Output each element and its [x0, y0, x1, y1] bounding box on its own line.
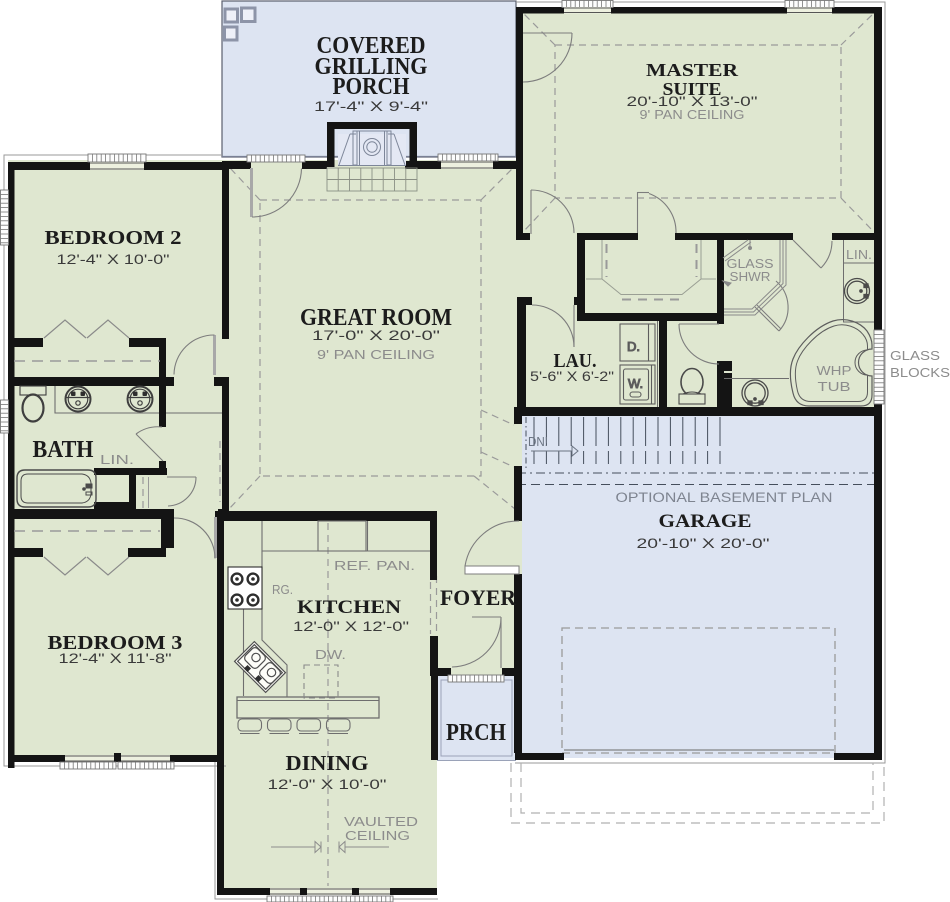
- svg-text:9' PAN CEILING: 9' PAN CEILING: [640, 107, 745, 122]
- svg-text:GLASS: GLASS: [727, 257, 774, 271]
- svg-text:GARAGE: GARAGE: [659, 511, 752, 532]
- svg-text:FOYER: FOYER: [440, 585, 517, 610]
- svg-text:DW.: DW.: [315, 647, 346, 662]
- svg-text:12'-4" X 11'-8": 12'-4" X 11'-8": [59, 650, 172, 666]
- svg-text:MASTER: MASTER: [646, 60, 739, 80]
- svg-text:KITCHEN: KITCHEN: [297, 597, 401, 618]
- svg-text:9' PAN CEILING: 9' PAN CEILING: [317, 347, 435, 362]
- svg-text:BLOCKS: BLOCKS: [890, 365, 950, 380]
- svg-text:VAULTED: VAULTED: [344, 814, 418, 829]
- svg-text:DN!: DN!: [528, 434, 548, 449]
- svg-text:LIN.: LIN.: [100, 452, 134, 467]
- svg-text:BEDROOM 2: BEDROOM 2: [45, 227, 182, 249]
- svg-text:PORCH: PORCH: [333, 74, 410, 100]
- svg-text:BATH: BATH: [33, 437, 94, 463]
- svg-text:LIN.: LIN.: [846, 248, 872, 262]
- svg-text:D.: D.: [627, 339, 640, 354]
- svg-text:RG.: RG.: [272, 582, 293, 597]
- svg-text:WHP: WHP: [817, 364, 852, 378]
- svg-text:CEILING: CEILING: [345, 828, 410, 843]
- svg-text:17'-0" X 20'-0": 17'-0" X 20'-0": [312, 327, 440, 343]
- svg-text:TUB: TUB: [818, 380, 851, 394]
- svg-text:OPTIONAL BASEMENT PLAN: OPTIONAL BASEMENT PLAN: [616, 490, 833, 505]
- svg-text:5'-6" X 6'-2": 5'-6" X 6'-2": [530, 368, 614, 384]
- svg-text:12'-0" X 12'-0": 12'-0" X 12'-0": [293, 618, 409, 634]
- svg-text:GLASS: GLASS: [890, 348, 940, 363]
- svg-text:20'-10" X 20'-0": 20'-10" X 20'-0": [637, 535, 770, 551]
- svg-text:12'-4" X 10'-0": 12'-4" X 10'-0": [57, 251, 170, 267]
- svg-text:W.: W.: [628, 376, 643, 391]
- svg-text:REF. PAN.: REF. PAN.: [334, 558, 415, 573]
- svg-text:SHWR: SHWR: [730, 270, 771, 284]
- svg-text:12'-0" X 10'-0": 12'-0" X 10'-0": [268, 776, 387, 792]
- svg-text:17'-4" X 9'-4": 17'-4" X 9'-4": [314, 98, 428, 114]
- svg-text:PRCH: PRCH: [446, 720, 506, 746]
- svg-text:DINING: DINING: [286, 751, 369, 775]
